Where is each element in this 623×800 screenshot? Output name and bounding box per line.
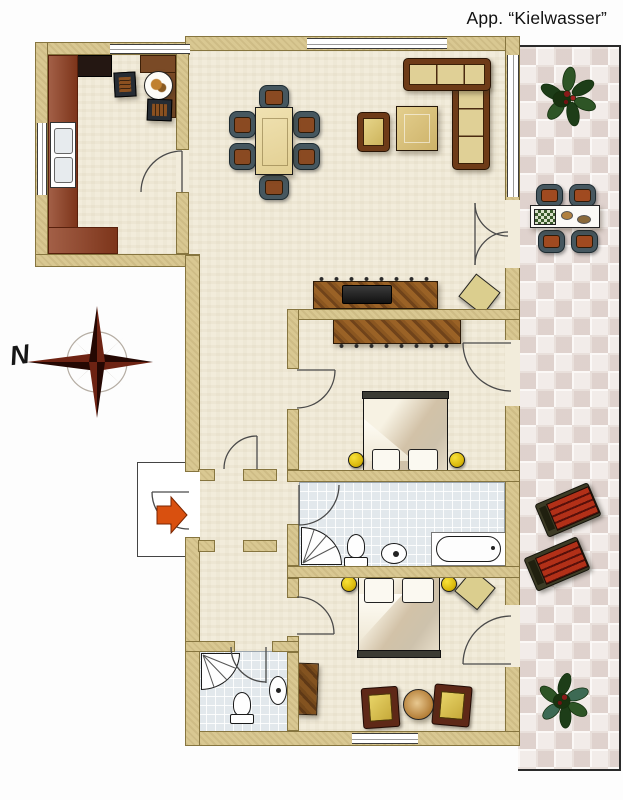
toilet-bowl: [233, 692, 251, 716]
terrace-chair: [571, 230, 598, 253]
terrace-table: [530, 205, 600, 228]
bathtub-surround: [431, 532, 506, 566]
nightstand: [348, 452, 364, 468]
double-bed-1: [363, 392, 448, 480]
tv: [342, 285, 392, 304]
dining-table: [255, 107, 293, 175]
pillow: [408, 449, 438, 471]
dining-chair: [293, 143, 320, 170]
kitchen-chair: [147, 99, 173, 122]
pillow: [402, 578, 434, 603]
window: [37, 123, 47, 195]
compass-north-label: N: [8, 339, 32, 372]
terrace-chair: [569, 184, 596, 207]
table-runner: [534, 209, 556, 225]
double-bed-2: [358, 573, 440, 657]
bathtub: [436, 536, 501, 562]
coffee-table: [396, 106, 438, 151]
dining-chair: [229, 143, 256, 170]
dining-chair: [259, 175, 289, 200]
kitchen-breakfast-table: [144, 71, 173, 100]
tv-sideboard: [313, 281, 438, 309]
bathtub-drain: [491, 546, 495, 550]
bidet: [381, 543, 407, 564]
compass-icon: [25, 300, 165, 425]
nightstand: [449, 452, 465, 468]
kitchen-counter-bottom: [48, 227, 118, 254]
nightstand: [341, 576, 357, 592]
wall: [287, 309, 520, 320]
terrace-plant: [540, 66, 598, 128]
plant-icon: [537, 672, 592, 730]
window: [110, 44, 190, 54]
terrace-plant: [537, 672, 592, 730]
wall: [287, 578, 299, 598]
sink-basin: [54, 128, 73, 154]
door-opening-entrance: [185, 472, 200, 537]
kitchen-chair: [113, 71, 136, 97]
floor-plan: N App. “Kielwasser”: [0, 0, 623, 800]
armchair-bedroom-2: [431, 683, 472, 727]
wall: [287, 652, 299, 731]
wall: [176, 51, 189, 150]
page-title: App. “Kielwasser”: [466, 8, 607, 29]
kitchen-sink: [50, 122, 76, 188]
sofa-cushions: [409, 64, 485, 85]
dining-chair: [293, 111, 320, 138]
window: [507, 55, 519, 197]
wall: [287, 409, 299, 470]
window: [307, 38, 447, 49]
kitchen-appliance-block: [75, 55, 112, 77]
dining-chair: [229, 111, 256, 138]
dish: [561, 211, 573, 220]
bidet-drain: [393, 551, 399, 557]
wall: [243, 469, 277, 481]
bed-footboard: [357, 650, 441, 658]
wall: [185, 255, 200, 472]
entrance-vestibule: [137, 462, 187, 557]
wall: [198, 469, 215, 481]
wall: [185, 641, 235, 652]
pillow: [364, 578, 394, 603]
wall: [243, 540, 277, 552]
armchair-cushion: [363, 118, 384, 146]
wall: [287, 309, 299, 369]
wall: [287, 566, 520, 578]
toilet-2: [230, 692, 254, 725]
toilet-tank: [230, 714, 254, 724]
washbasin: [269, 676, 287, 705]
wall: [287, 470, 520, 482]
chair-seat: [152, 104, 167, 117]
chair-seat: [119, 77, 132, 93]
terrace-chair: [538, 230, 565, 253]
bed-footboard: [362, 391, 449, 399]
round-table-bedroom-2: [403, 689, 434, 720]
table-detail: [404, 114, 430, 143]
door-opening-kitchen: [176, 150, 189, 192]
window: [352, 733, 418, 744]
armchair-bedroom-2: [361, 686, 401, 729]
wall: [35, 254, 200, 267]
wall: [287, 524, 299, 566]
door-opening-terrace-living: [505, 200, 520, 268]
dish: [577, 215, 591, 224]
basin-drain: [276, 688, 281, 693]
corner-sofa-top: [403, 58, 491, 91]
armchair-living: [357, 112, 390, 152]
terrace-chair: [536, 184, 563, 207]
wall: [176, 192, 189, 254]
door-opening-terrace-bedroom-1: [505, 340, 520, 406]
toilet-bowl: [347, 534, 365, 558]
terrace-floor: [518, 45, 621, 771]
wall: [272, 641, 299, 652]
compass-rose: [25, 300, 165, 425]
sink-basin: [54, 157, 73, 183]
plant-icon: [540, 66, 598, 128]
door-opening-terrace-bedroom-2: [505, 605, 520, 667]
pillow: [372, 449, 400, 471]
toilet-1: [344, 534, 368, 567]
table-detail: [262, 118, 288, 166]
wall: [198, 540, 215, 552]
